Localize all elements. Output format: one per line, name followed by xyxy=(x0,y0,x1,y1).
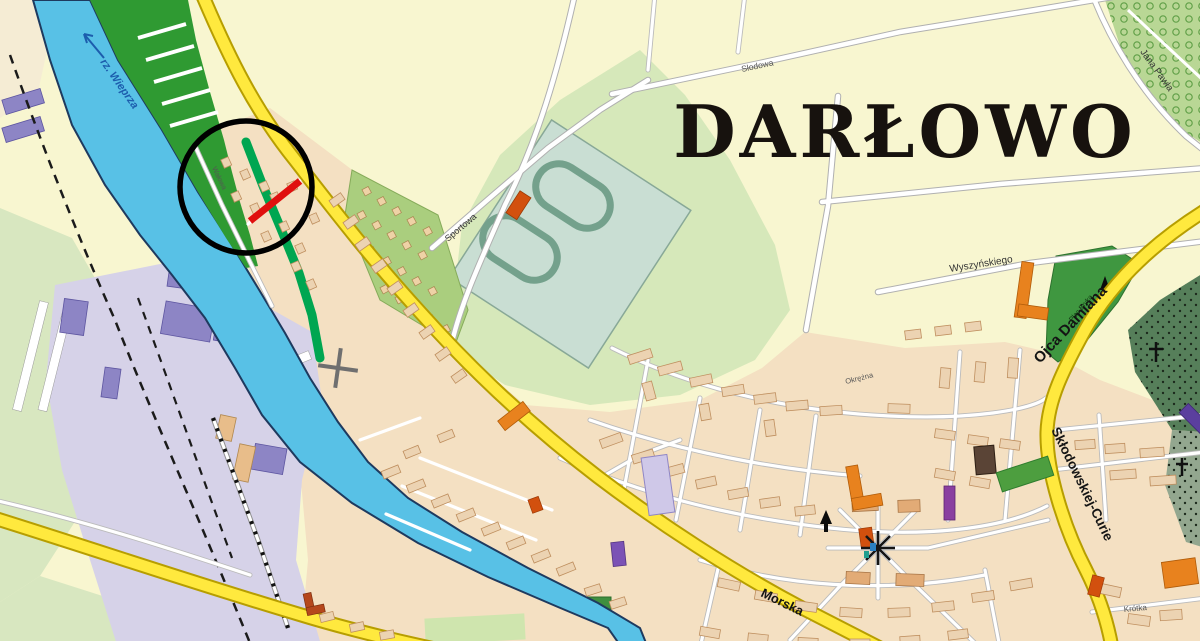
map-title: DARŁOWO xyxy=(673,89,1137,174)
map-image: DARŁOWO rz. Wieprza Morska Ojca Damiana … xyxy=(0,0,1200,641)
church-building xyxy=(974,445,996,475)
map-canvas: DARŁOWO rz. Wieprza Morska Ojca Damiana … xyxy=(0,0,1200,641)
market-star-icon xyxy=(861,531,895,565)
